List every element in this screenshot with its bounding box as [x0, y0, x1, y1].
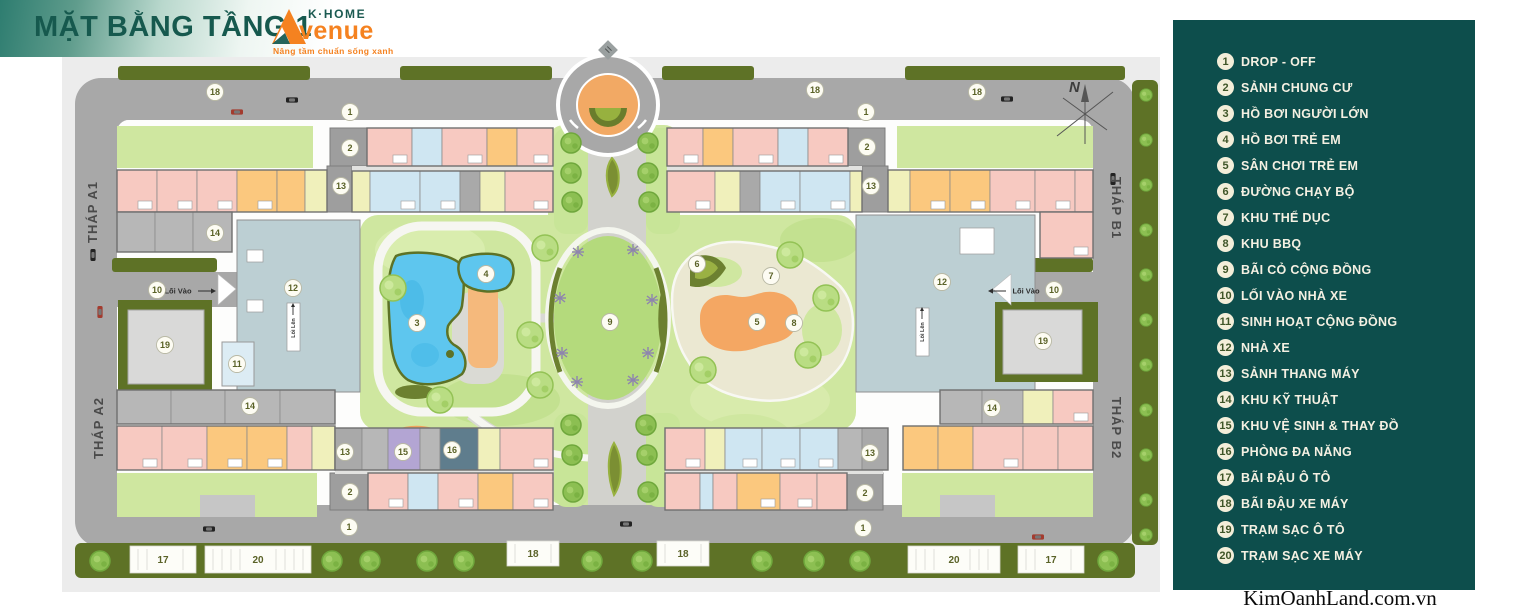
legend-item: 18BÃI ĐẬU XE MÁY — [1217, 495, 1461, 512]
unit — [778, 128, 808, 166]
unit — [305, 170, 327, 212]
legend-item-number: 4 — [1217, 131, 1234, 148]
car-icon — [1032, 534, 1044, 539]
plan-marker: 9 — [602, 314, 619, 331]
unit — [703, 128, 733, 166]
legend-item: 19TRẠM SẠC Ô TÔ — [1217, 521, 1461, 538]
legend-item: 10LỐI VÀO NHÀ XE — [1217, 287, 1461, 304]
plan-marker-number: 16 — [447, 445, 457, 455]
legend-list: 1DROP - OFF2SẢNH CHUNG CƯ3HỒ BƠI NGƯỜI L… — [1173, 20, 1475, 590]
legend-item: 17BÃI ĐẬU Ô TÔ — [1217, 469, 1461, 486]
unit — [838, 428, 862, 470]
tree-icon — [454, 551, 474, 571]
legend-item-number: 12 — [1217, 339, 1234, 356]
legend-item: 3HỒ BƠI NGƯỜI LỚN — [1217, 105, 1461, 122]
tree-icon — [777, 242, 803, 268]
plan-marker: 13 — [333, 178, 350, 195]
tree-icon — [638, 163, 658, 183]
unit — [715, 171, 740, 212]
palm-icon — [572, 246, 584, 258]
plan-marker: 14 — [984, 400, 1001, 417]
tower-label: THÁP A2 — [91, 397, 106, 459]
site-plan-page: MẶT BẰNG TẦNG 1 K·HOME venue Nâng tầm ch… — [0, 0, 1536, 614]
plan-marker: 5 — [749, 314, 766, 331]
tree-icon — [1140, 529, 1152, 541]
car-icon — [97, 306, 102, 318]
legend-item-label: SẢNH CHUNG CƯ — [1241, 81, 1353, 95]
unit — [480, 171, 505, 212]
car-icon — [286, 97, 298, 102]
plan-marker-number: 18 — [972, 87, 982, 97]
legend-item-label: HỒ BƠI NGƯỜI LỚN — [1241, 107, 1369, 121]
legend-item-label: TRẠM SẠC Ô TÔ — [1241, 523, 1345, 537]
tree-icon — [1140, 179, 1152, 191]
legend-item-number: 2 — [1217, 79, 1234, 96]
tree-icon — [417, 551, 437, 571]
tree-icon — [804, 551, 824, 571]
tree-icon — [752, 551, 772, 571]
palm-icon — [556, 347, 568, 359]
palm-icon — [571, 376, 583, 388]
legend-item: 12NHÀ XE — [1217, 339, 1461, 356]
tree-icon — [1140, 494, 1152, 506]
legend-item-number: 16 — [1217, 443, 1234, 460]
legend-item: 11SINH HOẠT CỘNG ĐỒNG — [1217, 313, 1461, 330]
plan-marker-number: 1 — [863, 107, 868, 117]
unit — [1023, 390, 1053, 424]
plan-marker: 11 — [229, 356, 246, 373]
plan-marker-number: 8 — [791, 318, 796, 328]
watermark: KimOanhLand.com.vn — [1200, 586, 1480, 611]
plan-marker-number: 18 — [810, 85, 820, 95]
plan-marker: 13 — [863, 178, 880, 195]
parking-box: 18 — [657, 541, 709, 566]
tree-icon — [639, 192, 659, 212]
legend-item: 4HỒ BƠI TRẺ EM — [1217, 131, 1461, 148]
legend-item-label: SÂN CHƠI TRẺ EM — [1241, 159, 1358, 173]
unit — [713, 473, 737, 510]
plan-marker: 1 — [341, 519, 358, 536]
parking-box: 17 — [1018, 546, 1084, 573]
tree-icon — [427, 387, 453, 413]
unit — [280, 390, 335, 424]
plan-marker: 18 — [807, 82, 824, 99]
svg-text:Lối Vào: Lối Vào — [164, 287, 192, 296]
tree-icon — [561, 133, 581, 153]
plan-marker-number: 10 — [152, 285, 162, 295]
plan-marker: 13 — [862, 445, 879, 462]
car-icon — [231, 109, 243, 114]
palm-icon — [554, 292, 566, 304]
unit — [117, 390, 171, 424]
plan-marker-number: 4 — [483, 269, 488, 279]
unit — [817, 473, 847, 510]
parking-box-number: 20 — [948, 555, 960, 566]
legend-panel: 1DROP - OFF2SẢNH CHUNG CƯ3HỒ BƠI NGƯỜI L… — [1173, 20, 1475, 590]
plan-marker-number: 13 — [866, 181, 876, 191]
tree-icon — [813, 285, 839, 311]
unit — [478, 428, 500, 470]
tree-icon — [517, 322, 543, 348]
parking-box-number: 20 — [252, 555, 264, 566]
unit — [487, 128, 517, 166]
plan-marker: 1 — [858, 104, 875, 121]
unit — [700, 473, 713, 510]
unit — [888, 170, 910, 212]
plan-marker-number: 1 — [860, 523, 865, 533]
plan-marker-number: 19 — [1038, 336, 1048, 346]
plan-marker: 1 — [855, 520, 872, 537]
palm-icon — [642, 347, 654, 359]
legend-item: 5SÂN CHƠI TRẺ EM — [1217, 157, 1461, 174]
unit — [352, 171, 370, 212]
unit — [312, 426, 335, 470]
tree-icon — [563, 482, 583, 502]
unit — [478, 473, 513, 510]
tree-icon — [532, 235, 558, 261]
legend-item-number: 11 — [1217, 313, 1234, 330]
plan-marker: 4 — [478, 266, 495, 283]
unit — [850, 171, 862, 212]
legend-item-number: 9 — [1217, 261, 1234, 278]
plan-marker-number: 19 — [160, 340, 170, 350]
plan-marker-number: 7 — [768, 271, 773, 281]
plan-marker-number: 2 — [862, 488, 867, 498]
unit — [1058, 426, 1093, 470]
legend-item-label: BÃI CỎ CỘNG ĐỒNG — [1241, 263, 1372, 277]
palm-icon — [627, 374, 639, 386]
tree-icon — [90, 551, 110, 571]
plan-marker-number: 13 — [336, 181, 346, 191]
unit — [1075, 170, 1093, 212]
plan-marker-number: 14 — [210, 228, 220, 238]
legend-item-label: BÃI ĐẬU XE MÁY — [1241, 497, 1349, 511]
legend-item: 15KHU VỆ SINH & THAY ĐỒ — [1217, 417, 1461, 434]
car-icon — [90, 249, 95, 261]
legend-item-number: 18 — [1217, 495, 1234, 512]
plan-marker-number: 5 — [754, 317, 759, 327]
legend-item: 16PHÒNG ĐA NĂNG — [1217, 443, 1461, 460]
parking-box: 18 — [507, 541, 559, 566]
plan-marker-number: 2 — [864, 142, 869, 152]
unit — [277, 170, 305, 212]
legend-item: 14KHU KỸ THUẬT — [1217, 391, 1461, 408]
legend-item-number: 17 — [1217, 469, 1234, 486]
plan-marker: 10 — [1046, 282, 1063, 299]
tree-icon — [636, 415, 656, 435]
unit — [940, 390, 982, 424]
legend-item-label: HỒ BƠI TRẺ EM — [1241, 133, 1341, 147]
legend-item-label: KHU THỂ DỤC — [1241, 211, 1330, 225]
plan-marker: 8 — [786, 315, 803, 332]
unit — [938, 426, 973, 470]
parking-box-number: 17 — [1045, 555, 1057, 566]
legend-item: 1DROP - OFF — [1217, 53, 1461, 70]
legend-item-label: TRẠM SẠC XE MÁY — [1241, 549, 1363, 563]
legend-item-label: PHÒNG ĐA NĂNG — [1241, 445, 1352, 459]
legend-item-label: LỐI VÀO NHÀ XE — [1241, 289, 1347, 303]
parking-box-number: 18 — [677, 549, 689, 560]
plan-marker: 2 — [342, 140, 359, 157]
legend-item-number: 10 — [1217, 287, 1234, 304]
legend-item-label: ĐƯỜNG CHẠY BỘ — [1241, 185, 1355, 199]
svg-text:Lối Lên: Lối Lên — [919, 322, 926, 342]
tree-icon — [562, 445, 582, 465]
plan-marker: 15 — [395, 444, 412, 461]
plan-marker: 12 — [285, 280, 302, 297]
tree-icon — [527, 372, 553, 398]
tower-label: THÁP A1 — [85, 181, 100, 243]
compass-north-label: N — [1069, 79, 1081, 96]
unit — [1023, 426, 1058, 470]
legend-item-number: 20 — [1217, 547, 1234, 564]
plan-marker: 18 — [207, 84, 224, 101]
parking-box: 20 — [205, 546, 311, 573]
tree-icon — [561, 163, 581, 183]
plan-marker: 14 — [242, 398, 259, 415]
plan-marker-number: 12 — [288, 283, 298, 293]
legend-item-label: KHU BBQ — [1241, 237, 1301, 251]
car-icon — [203, 526, 215, 531]
tree-icon — [1140, 134, 1152, 146]
svg-text:Lối Vào: Lối Vào — [1012, 287, 1040, 296]
plan-marker: 19 — [1035, 333, 1052, 350]
legend-item-label: BÃI ĐẬU Ô TÔ — [1241, 471, 1331, 485]
plan-marker: 6 — [689, 256, 706, 273]
unit — [420, 428, 440, 470]
palm-icon — [646, 294, 658, 306]
legend-item-label: SINH HOẠT CỘNG ĐỒNG — [1241, 315, 1397, 329]
legend-item: 8KHU BBQ — [1217, 235, 1461, 252]
tree-icon — [638, 133, 658, 153]
unit — [171, 390, 225, 424]
unit — [362, 428, 388, 470]
unit — [740, 171, 760, 212]
tree-icon — [1140, 89, 1152, 101]
legend-item-label: KHU VỆ SINH & THAY ĐỒ — [1241, 419, 1399, 433]
legend-item-number: 19 — [1217, 521, 1234, 538]
legend-item: 2SẢNH CHUNG CƯ — [1217, 79, 1461, 96]
unit — [903, 426, 938, 470]
plan-marker: 13 — [337, 444, 354, 461]
tree-icon — [322, 551, 342, 571]
plan-marker-number: 2 — [347, 143, 352, 153]
plan-marker: 3 — [409, 315, 426, 332]
plan-marker-number: 15 — [398, 447, 408, 457]
tree-icon — [1140, 269, 1152, 281]
legend-item-number: 14 — [1217, 391, 1234, 408]
plan-marker: 10 — [149, 282, 166, 299]
plan-marker: 2 — [342, 484, 359, 501]
tree-icon — [638, 482, 658, 502]
tree-icon — [562, 192, 582, 212]
tree-icon — [1098, 551, 1118, 571]
plan-marker-number: 2 — [347, 487, 352, 497]
tree-icon — [582, 551, 602, 571]
legend-item-number: 1 — [1217, 53, 1234, 70]
unit — [665, 473, 700, 510]
plan-marker-number: 13 — [865, 448, 875, 458]
legend-item-number: 13 — [1217, 365, 1234, 382]
plan-marker: 18 — [969, 84, 986, 101]
tree-icon — [632, 551, 652, 571]
legend-item-label: SẢNH THANG MÁY — [1241, 367, 1360, 381]
legend-item-number: 7 — [1217, 209, 1234, 226]
plan-marker-number: 6 — [694, 259, 699, 269]
unit — [408, 473, 438, 510]
tree-icon — [690, 357, 716, 383]
tree-icon — [637, 445, 657, 465]
svg-text:Lối Lên: Lối Lên — [290, 318, 297, 338]
tree-icon — [360, 551, 380, 571]
legend-item: 6ĐƯỜNG CHẠY BỘ — [1217, 183, 1461, 200]
unit — [155, 212, 193, 252]
plan-marker: 2 — [857, 485, 874, 502]
legend-item: 9BÃI CỎ CỘNG ĐỒNG — [1217, 261, 1461, 278]
plan-marker-number: 18 — [210, 87, 220, 97]
plan-marker: 7 — [763, 268, 780, 285]
plan-marker-number: 3 — [414, 318, 419, 328]
tree-icon — [850, 551, 870, 571]
plan-marker-number: 9 — [607, 317, 612, 327]
tower-label: THÁP B2 — [1109, 397, 1124, 459]
legend-item-number: 8 — [1217, 235, 1234, 252]
parking-box: 20 — [908, 546, 1000, 573]
unit — [412, 128, 442, 166]
legend-item-label: NHÀ XE — [1241, 341, 1290, 355]
legend-item-number: 15 — [1217, 417, 1234, 434]
plan-marker-number: 14 — [245, 401, 255, 411]
unit — [705, 428, 725, 470]
car-icon — [620, 521, 632, 526]
plan-marker: 19 — [157, 337, 174, 354]
tower-label: THÁP B1 — [1109, 177, 1124, 239]
legend-item-number: 3 — [1217, 105, 1234, 122]
plan-marker: 14 — [207, 225, 224, 242]
plan-marker: 16 — [444, 442, 461, 459]
plan-marker-number: 12 — [937, 277, 947, 287]
car-icon — [1001, 96, 1013, 101]
tree-icon — [561, 415, 581, 435]
tree-icon — [795, 342, 821, 368]
plan-marker-number: 11 — [232, 359, 242, 369]
tree-icon — [1140, 359, 1152, 371]
plan-marker-number: 1 — [347, 107, 352, 117]
plan-marker: 2 — [859, 139, 876, 156]
legend-item: 7KHU THỂ DỤC — [1217, 209, 1461, 226]
plan-marker: 1 — [342, 104, 359, 121]
parking-box: 17 — [130, 546, 196, 573]
legend-item: 20TRẠM SẠC XE MÁY — [1217, 547, 1461, 564]
parking-box-number: 18 — [527, 549, 539, 560]
unit — [117, 212, 155, 252]
plan-marker-number: 13 — [340, 447, 350, 457]
legend-item-label: DROP - OFF — [1241, 55, 1316, 69]
legend-item-label: KHU KỸ THUẬT — [1241, 393, 1338, 407]
plan-marker-number: 14 — [987, 403, 997, 413]
tree-icon — [380, 275, 406, 301]
legend-item-number: 5 — [1217, 157, 1234, 174]
legend-item: 13SẢNH THANG MÁY — [1217, 365, 1461, 382]
parking-box-number: 17 — [157, 555, 169, 566]
plan-marker: 12 — [934, 274, 951, 291]
unit — [460, 171, 480, 212]
plan-marker-number: 1 — [346, 522, 351, 532]
plan-marker-number: 10 — [1049, 285, 1059, 295]
tree-icon — [1140, 404, 1152, 416]
legend-item-number: 6 — [1217, 183, 1234, 200]
tree-icon — [1140, 449, 1152, 461]
tree-icon — [1140, 314, 1152, 326]
palm-icon — [627, 244, 639, 256]
unit — [287, 426, 312, 470]
tree-icon — [1140, 224, 1152, 236]
